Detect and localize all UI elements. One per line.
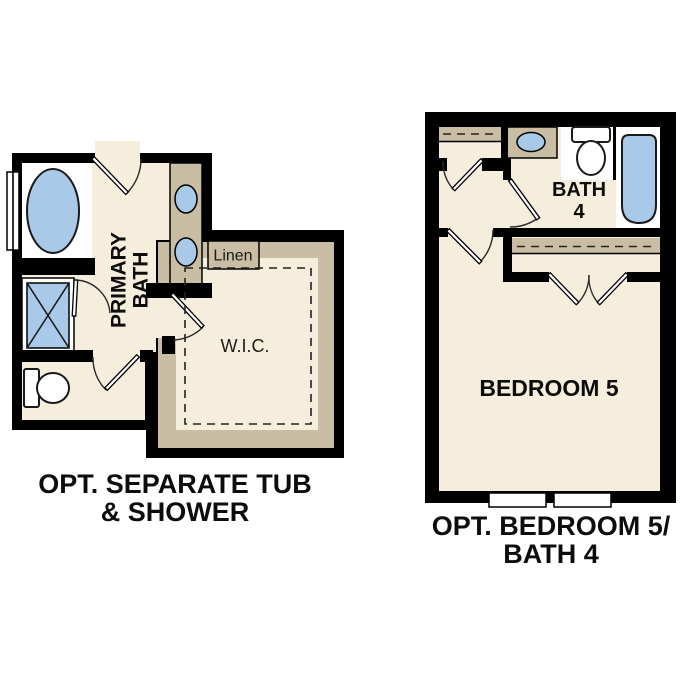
sink-icon [517, 133, 545, 152]
floorplan-canvas: PRIMARY BATH Linen W.I.C. OPT. SEPARATE … [0, 0, 687, 687]
cabinetry [170, 163, 259, 285]
bathtub-icon [27, 169, 79, 253]
toilet-room-wall [12, 350, 93, 361]
closet-front-wall-left [503, 272, 549, 282]
primary-bath-label-line1: PRIMARY [108, 232, 131, 328]
linen-label: Linen [213, 248, 252, 265]
bedroom-closet-shelf [512, 238, 660, 253]
bath4-label-line1: BATH [552, 179, 606, 201]
toilet-tank [572, 127, 610, 142]
bath4-label-line2: 4 [573, 201, 585, 223]
left-caption-line2: & SHOWER [101, 497, 250, 527]
plan-bedroom5: BATH 4 BEDROOM 5 OPT. BEDROOM 5/ BATH 4 [425, 112, 676, 569]
floorplan-svg: PRIMARY BATH Linen W.I.C. OPT. SEPARATE … [0, 0, 687, 687]
closet-front-wall-right [627, 272, 660, 282]
bath-door-stub [503, 158, 511, 180]
wic-door-stub [162, 336, 175, 354]
closet-vanity-wall [501, 127, 508, 158]
plan-primary-bath: PRIMARY BATH Linen W.I.C. OPT. SEPARATE … [7, 141, 344, 527]
bath-bedroom-wall [493, 228, 662, 237]
wic-label: W.I.C. [221, 336, 270, 356]
right-caption-line1: OPT. BEDROOM 5/ [432, 511, 671, 541]
sink-icon [175, 238, 197, 266]
entry-opening-floor [95, 141, 140, 163]
left-caption-line1: OPT. SEPARATE TUB [38, 469, 312, 499]
toilet-room-wall-stub [140, 350, 153, 361]
alcove-divider-wall [613, 127, 616, 180]
vanity-end-wall [146, 283, 212, 298]
sink-icon [175, 185, 197, 213]
tub-shower-divider-wall [12, 258, 95, 275]
window-icon [489, 493, 546, 507]
bedroom5-label: BEDROOM 5 [479, 375, 619, 401]
toilet-bowl [577, 141, 605, 175]
primary-bath-label-line2: BATH [130, 252, 153, 309]
bedroom-door-stub [425, 228, 448, 237]
toilet-bowl [37, 373, 69, 403]
right-caption-line2: BATH 4 [503, 539, 599, 569]
window-icon [554, 493, 611, 507]
bathtub-icon [622, 135, 656, 223]
